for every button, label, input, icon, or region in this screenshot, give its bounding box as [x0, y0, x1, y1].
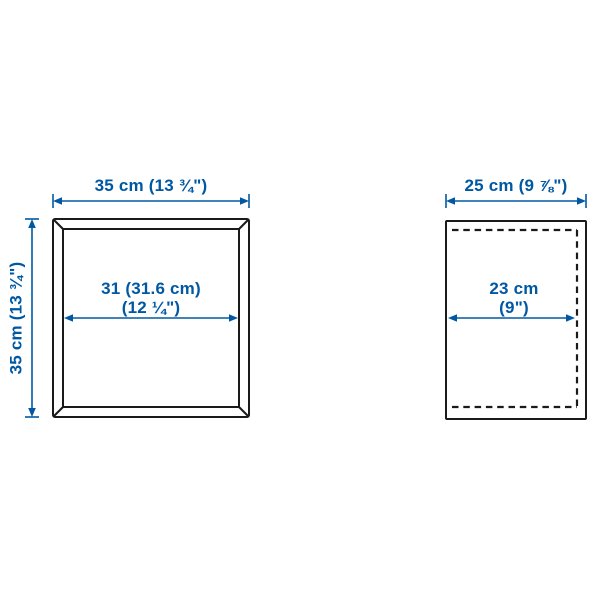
product-dimension-diagram: 35 cm (13 ¾") 35 cm (13 ¾") 31 (31.6 cm)…	[0, 0, 600, 600]
front-inner-width-line2: (12 ¼")	[101, 298, 201, 317]
arrowhead-right	[229, 314, 238, 322]
side-inner-depth-line1: 23 cm	[489, 279, 538, 298]
miter-line	[238, 406, 248, 416]
arrowhead-right	[577, 197, 586, 205]
front-height-dimension-arrow	[25, 219, 39, 417]
side-depth-label: 25 cm (9 ⅞")	[464, 176, 567, 195]
miter-line	[54, 220, 64, 230]
front-width-dimension-arrow	[53, 194, 249, 208]
arrowhead-left	[53, 197, 62, 205]
miter-line	[238, 220, 248, 230]
arrowhead-right	[566, 314, 575, 322]
arrowhead-right	[240, 197, 249, 205]
front-height-label: 35 cm (13 ¾")	[7, 262, 26, 375]
miter-line	[54, 406, 64, 416]
side-depth-dimension-arrow	[446, 194, 586, 208]
arrowhead-left	[448, 314, 457, 322]
side-inner-depth-line2: (9")	[489, 298, 538, 317]
front-width-label: 35 cm (13 ¾")	[95, 176, 208, 195]
front-inner-width-label: 31 (31.6 cm) (12 ¼")	[101, 279, 201, 317]
side-inner-depth-label: 23 cm (9")	[489, 279, 538, 317]
arrowhead-top	[28, 219, 36, 228]
arrowhead-bottom	[28, 408, 36, 417]
arrowhead-left	[64, 314, 73, 322]
front-inner-width-line1: 31 (31.6 cm)	[101, 279, 201, 298]
arrowhead-left	[446, 197, 455, 205]
